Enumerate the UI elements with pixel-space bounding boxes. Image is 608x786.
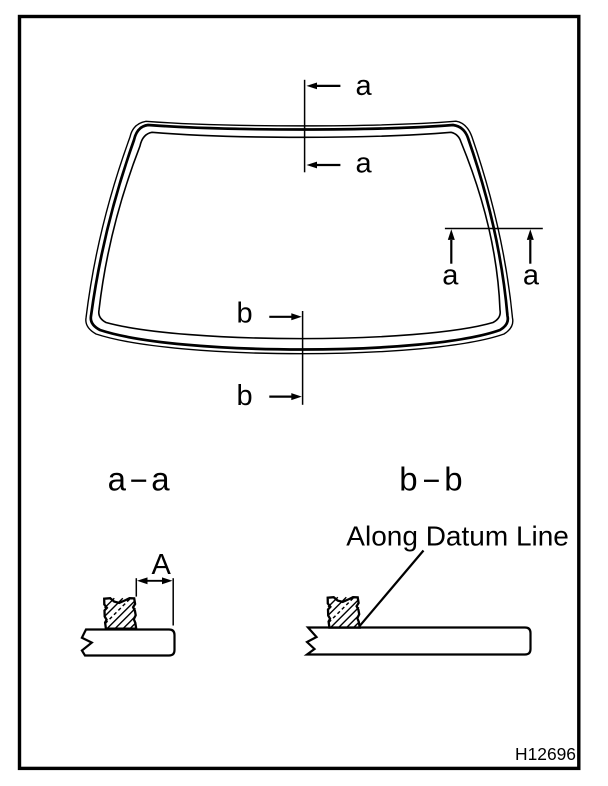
- svg-text:a: a: [442, 260, 459, 292]
- svg-text:Along Datum Line: Along Datum Line: [346, 521, 569, 552]
- svg-text:a: a: [108, 460, 127, 497]
- svg-text:b: b: [237, 380, 253, 412]
- svg-text:b: b: [237, 298, 253, 330]
- svg-text:a: a: [151, 460, 170, 497]
- svg-text:a: a: [356, 147, 373, 179]
- svg-text:b: b: [399, 461, 417, 498]
- svg-text:H12696: H12696: [515, 744, 576, 764]
- svg-text:A: A: [152, 549, 172, 581]
- svg-text:b: b: [444, 461, 462, 498]
- svg-text:a: a: [523, 260, 540, 292]
- svg-text:a: a: [356, 70, 373, 102]
